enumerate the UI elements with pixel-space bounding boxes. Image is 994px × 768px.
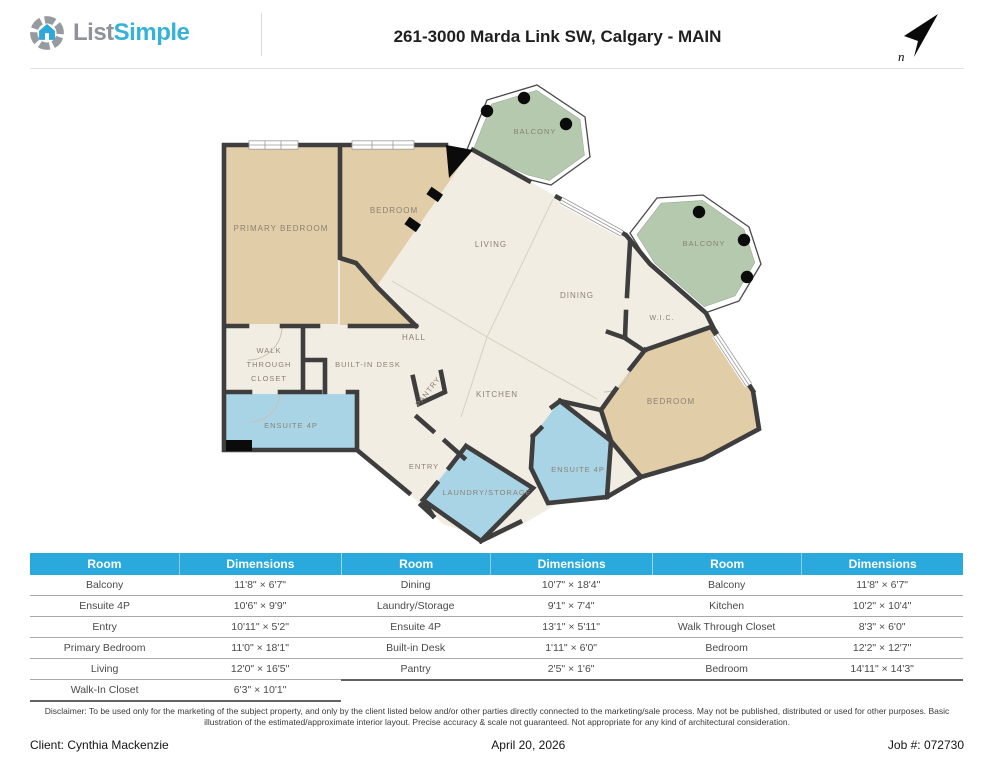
room-cell: Pantry (341, 659, 490, 679)
table-row: Pantry2'5" × 1'6" (341, 659, 652, 681)
listsimple-logo-text: ListSimple (73, 19, 189, 47)
logo-word-list: List (73, 19, 114, 46)
room-label-ensuite-left: ENSUITE 4P (264, 421, 318, 430)
dimensions-cell: 8'3" × 6'0" (801, 617, 963, 637)
property-title: 261-3000 Marda Link SW, Calgary - MAIN (261, 27, 854, 47)
room-cell: Ensuite 4P (341, 617, 490, 637)
camera-shutter-logo-icon (28, 14, 66, 52)
dimensions-cell: 10'11" × 5'2" (179, 617, 341, 637)
room-label-balcony-right: BALCONY (683, 239, 726, 248)
dimensions-cell: 9'1" × 7'4" (490, 596, 652, 616)
room-label-dining: DINING (560, 291, 594, 300)
table-row: Dining10'7" × 18'4" (341, 575, 652, 596)
room-label-balcony-top: BALCONY (514, 127, 557, 136)
table-header-dimensions: Dimensions (490, 553, 652, 575)
table-header-room: Room (653, 553, 801, 575)
room-cell: Ensuite 4P (30, 596, 179, 616)
table-row: Balcony11'8" × 6'7" (652, 575, 963, 596)
room-label-kitchen: KITCHEN (476, 390, 518, 399)
room-label-bedroom-right: BEDROOM (647, 397, 695, 406)
dimensions-cell: 2'5" × 1'6" (490, 659, 652, 679)
dimensions-cell: 10'2" × 10'4" (801, 596, 963, 616)
table-row: Bedroom14'11" × 14'3" (652, 659, 963, 681)
dimensions-cell: 12'2" × 12'7" (801, 638, 963, 658)
floor-plan-page: ListSimple 261-3000 Marda Link SW, Calga… (0, 0, 994, 768)
table-header-dimensions: Dimensions (179, 553, 341, 575)
dimensions-cell: 14'11" × 14'3" (801, 659, 963, 679)
dimensions-cell: 10'7" × 18'4" (490, 575, 652, 595)
balcony-post (518, 92, 530, 104)
room-label-ensuite-right: ENSUITE 4P (551, 465, 605, 474)
table-header-row: RoomDimensions (30, 553, 341, 575)
table-row: Walk Through Closet8'3" × 6'0" (652, 617, 963, 638)
table-row: Entry10'11" × 5'2" (30, 617, 341, 638)
ensuite-fixture (226, 440, 252, 451)
dimensions-cell: 1'11" × 6'0" (490, 638, 652, 658)
table-row: Primary Bedroom11'0" × 18'1" (30, 638, 341, 659)
room-dimensions-table: RoomDimensionsBalcony11'8" × 6'7"Ensuite… (30, 553, 341, 702)
dimensions-cell: 11'0" × 18'1" (179, 638, 341, 658)
table-row: Balcony11'8" × 6'7" (30, 575, 341, 596)
dimensions-cell: 11'8" × 6'7" (179, 575, 341, 595)
client-name: Client: Cynthia Mackenzie (30, 738, 169, 752)
room-cell: Walk Through Closet (652, 617, 801, 637)
room-label-bedroom-top: BEDROOM (370, 206, 418, 215)
room-label-closet: CLOSET (251, 374, 287, 383)
room-cell: Walk-In Closet (30, 680, 179, 700)
table-row: Living12'0" × 16'5" (30, 659, 341, 680)
room-label-wic: W.I.C. (649, 315, 674, 322)
table-header-row: RoomDimensions (652, 553, 963, 575)
balcony-post (738, 234, 750, 246)
room-cell: Laundry/Storage (341, 596, 490, 616)
disclaimer-text: Disclaimer: To be used only for the mark… (38, 706, 956, 728)
room-label-primary-bedroom: PRIMARY BEDROOM (234, 224, 329, 233)
table-row: Built-in Desk1'11" × 6'0" (341, 638, 652, 659)
room-cell: Balcony (652, 575, 801, 595)
table-header-dimensions: Dimensions (801, 553, 963, 575)
room-label-laundry: LAUNDRY/STORAGE (442, 488, 531, 497)
room-label-through: THROUGH (247, 360, 292, 369)
page-footer: Client: Cynthia Mackenzie April 20, 2026… (30, 738, 964, 752)
table-row: Laundry/Storage9'1" × 7'4" (341, 596, 652, 617)
compass-n-letter: n (898, 49, 905, 64)
balcony-post (741, 271, 753, 283)
table-header-room: Room (342, 553, 490, 575)
room-cell: Built-in Desk (341, 638, 490, 658)
room-label-living: LIVING (475, 240, 507, 249)
balcony-post (481, 105, 493, 117)
room-cell: Bedroom (652, 659, 801, 679)
job-number: Job #: 072730 (888, 738, 964, 752)
dimensions-cell: 13'1" × 5'11" (490, 617, 652, 637)
logo-word-simple: Simple (114, 19, 190, 46)
dimensions-cell: 11'8" × 6'7" (801, 575, 963, 595)
floor-plan: BALCONYBALCONYPRIMARY BEDROOMBEDROOMLIVI… (0, 75, 994, 545)
room-label-built-in-desk: BUILT-IN DESK (335, 360, 401, 369)
room-label-entry: ENTRY (409, 462, 439, 471)
balcony-post (560, 118, 572, 130)
room-label-hall: HALL (402, 333, 426, 342)
balcony-post (693, 206, 705, 218)
room-cell: Dining (341, 575, 490, 595)
north-arrow-icon: n (854, 6, 964, 66)
room-cell: Kitchen (652, 596, 801, 616)
table-row: Ensuite 4P10'6" × 9'9" (30, 596, 341, 617)
dimensions-cell: 12'0" × 16'5" (179, 659, 341, 679)
room-primary-bedroom (224, 145, 338, 324)
report-date: April 20, 2026 (491, 738, 565, 752)
room-cell: Bedroom (652, 638, 801, 658)
room-cell: Primary Bedroom (30, 638, 179, 658)
dimensions-cell: 10'6" × 9'9" (179, 596, 341, 616)
table-header-row: RoomDimensions (341, 553, 652, 575)
table-row: Bedroom12'2" × 12'7" (652, 638, 963, 659)
table-row: Ensuite 4P13'1" × 5'11" (341, 617, 652, 638)
room-cell: Living (30, 659, 179, 679)
header-rule (30, 68, 964, 69)
table-row: Walk-In Closet6'3" × 10'1" (30, 680, 341, 702)
listsimple-logo: ListSimple (28, 14, 189, 52)
room-dimensions-table: RoomDimensionsDining10'7" × 18'4"Laundry… (341, 553, 652, 681)
table-row: Kitchen10'2" × 10'4" (652, 596, 963, 617)
room-dimensions-table: RoomDimensionsBalcony11'8" × 6'7"Kitchen… (652, 553, 963, 681)
room-dimensions-tables: RoomDimensionsBalcony11'8" × 6'7"Ensuite… (30, 553, 963, 702)
table-header-room: Room (30, 553, 179, 575)
dimensions-cell: 6'3" × 10'1" (179, 680, 341, 700)
room-cell: Balcony (30, 575, 179, 595)
room-cell: Entry (30, 617, 179, 637)
room-label-walk: WALK (257, 346, 282, 355)
